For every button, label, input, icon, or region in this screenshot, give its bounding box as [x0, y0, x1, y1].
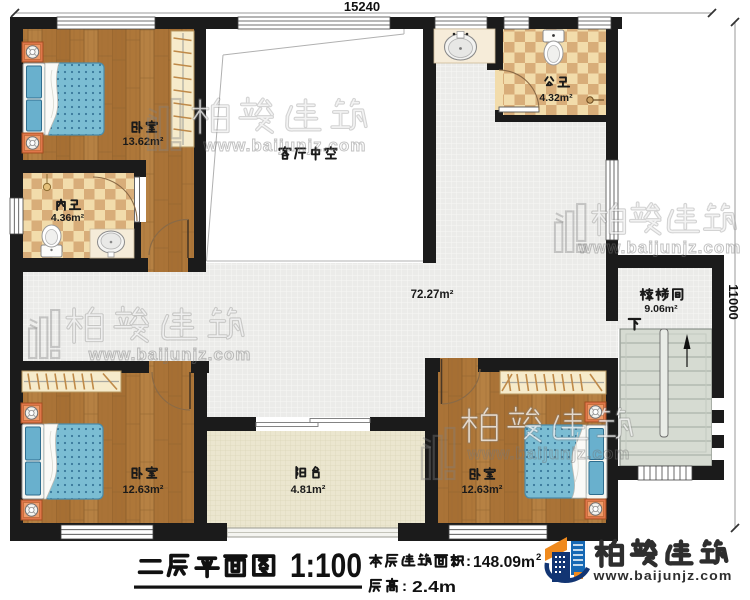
svg-text:9.06m²: 9.06m² [644, 303, 678, 315]
svg-text:www.baijunjz.com: www.baijunjz.com [88, 345, 252, 364]
svg-text:2.4m: 2.4m [412, 579, 456, 596]
svg-text:www.baijunjz.com: www.baijunjz.com [203, 136, 367, 155]
svg-text:4.32m²: 4.32m² [539, 92, 573, 104]
svg-text:72.27m²: 72.27m² [411, 289, 454, 301]
svg-text:11000: 11000 [726, 284, 741, 319]
svg-text:2: 2 [536, 552, 541, 563]
svg-text:4.81m²: 4.81m² [291, 484, 326, 496]
svg-text:www.baijunjz.com: www.baijunjz.com [578, 238, 742, 257]
svg-text:4.36m²: 4.36m² [51, 212, 85, 224]
svg-text:12.63m²: 12.63m² [462, 484, 503, 496]
svg-text:13.62m²: 13.62m² [123, 136, 164, 148]
svg-text:12.63m²: 12.63m² [123, 484, 164, 496]
svg-text:www.baijunjz.com: www.baijunjz.com [467, 444, 631, 463]
svg-text:15240: 15240 [344, 0, 380, 14]
svg-text:148.09m: 148.09m [473, 554, 535, 571]
svg-text:www.baijunjz.com: www.baijunjz.com [592, 568, 732, 583]
svg-text::: : [402, 578, 407, 595]
svg-text::: : [466, 553, 471, 570]
svg-text:1:100: 1:100 [290, 547, 362, 585]
